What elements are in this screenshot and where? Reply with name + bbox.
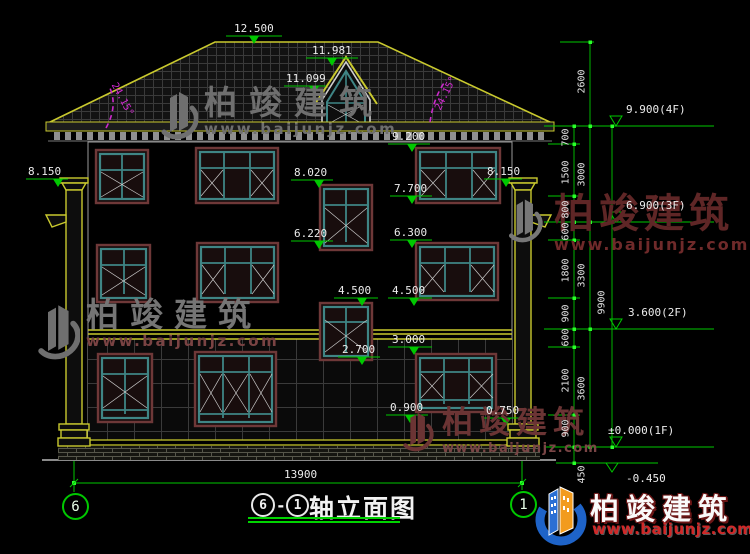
level-label-9200: 9.200 [392,130,425,143]
level-label-11099: 11.099 [286,72,326,85]
title-dash: - [276,496,286,515]
level-label-2700: 2.700 [342,343,375,356]
level-label-6220: 6.220 [294,227,327,240]
axis-number: 6 [71,499,79,515]
title-axis-number: 6 [259,498,267,513]
title-axis-circle-1: 1 [286,494,309,517]
floor-label-3f: 6.900(3F) [626,199,686,212]
level-label-8150-left: 8.150 [28,165,61,178]
level-label-4500-left: 4.500 [338,284,371,297]
level-label-4500-right: 4.500 [392,284,425,297]
axis-bubble-6: 6 [62,493,89,520]
dim-600b: 600 [561,316,572,360]
level-label-0750: 0.750 [486,404,519,417]
window-3f-center [196,148,278,203]
eave-cornice [46,122,554,141]
window-2f-right [416,243,498,300]
level-label-8150-right: 8.150 [487,165,520,178]
title-axis-number: 1 [294,498,302,513]
floor-label-4f: 9.900(4F) [626,103,686,116]
window-3f-left [96,150,148,203]
window-1f-right [416,354,496,412]
dim-2600: 2600 [577,60,588,104]
level-label-0900: 0.900 [390,401,423,414]
level-label-12500: 12.500 [234,22,274,35]
window-stair-upper [320,185,372,250]
drawing-title: 轴立面图 [309,489,417,525]
brand-logo-icon [532,480,590,552]
floor-label-2f: 3.600(2F) [628,306,688,319]
axis-number: 1 [519,497,527,513]
dim-13900-total: 13900 [284,468,317,481]
dim-900b: 900 [561,407,572,451]
dim-3000: 3000 [577,153,588,197]
title-underline [248,521,400,523]
floor-label-1f: ±0.000(1F) [608,424,674,437]
cad-elevation-screenshot: 柏竣建筑 www.baijunjz.com 柏竣建筑 www.baijunjz.… [0,0,750,554]
title-underline [248,517,400,519]
window-2f-center [197,243,278,302]
dim-600a: 600 [561,210,572,254]
level-label-6300: 6.300 [394,226,427,239]
dim-3300: 3300 [577,254,588,298]
level-label-11981: 11.981 [312,44,352,57]
level-label-3000: 3.000 [392,333,425,346]
level-label-8020: 8.020 [294,166,327,179]
window-1f-center [195,352,276,426]
window-2f-left [97,245,150,302]
dim-3600: 3600 [577,367,588,411]
title-axis-circle-6: 6 [251,493,275,517]
dim-1800: 1800 [561,249,572,293]
brand-url: www.baijunjz.com [592,520,750,538]
dim-9900-total: 9900 [597,281,608,325]
floor-label-foundation: -0.450 [626,472,666,485]
window-1f-left [98,354,152,422]
level-label-7700: 7.700 [394,182,427,195]
dim-2100: 2100 [561,359,572,403]
